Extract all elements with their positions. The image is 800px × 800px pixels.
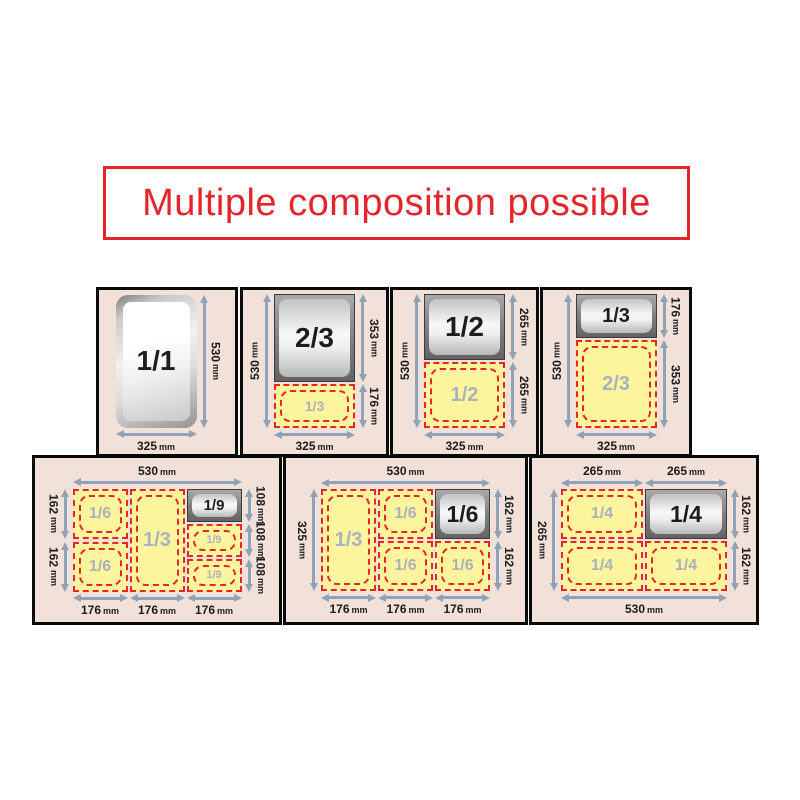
pan-surface: 1/4: [650, 494, 722, 534]
panel-1-3-plus-2-3: 1/32/3325mm530mm176mm353mm: [540, 287, 692, 457]
pan-grid-column: 1/61/6: [435, 489, 490, 591]
v-dimension-arrow-icon: [309, 489, 318, 591]
dim-label: 176mm: [329, 603, 367, 615]
panel-1-6-1-3-1-9: 1/61/61/31/91/91/9530mm176mm176mm176mm16…: [32, 455, 282, 625]
dim-label: 108mm: [255, 556, 267, 594]
v-dimension-arrow-icon: [245, 524, 254, 557]
right-dimensions: 176mm353mm: [660, 294, 682, 428]
bottom-dimensions: 325mm: [274, 430, 355, 452]
dim-right: 162mm: [493, 489, 515, 539]
dim-label: 162mm: [503, 547, 515, 585]
title-text: Multiple composition possible: [142, 182, 651, 225]
dim-bottom: 176mm: [130, 594, 185, 616]
dim-label: 265mm: [518, 376, 530, 414]
pan-grid-column: 1/61/6: [73, 489, 128, 592]
dim-top: 530mm: [321, 465, 490, 487]
dim-right: 353mm: [660, 340, 682, 428]
right-dimensions: 530mm: [200, 295, 222, 428]
pan-grid: 1/1: [116, 295, 197, 428]
pan-grid-column: 1/61/6: [378, 489, 433, 591]
h-dimension-arrow-icon: [116, 430, 197, 439]
pan-grid-column: 1/3: [321, 489, 376, 591]
dim-label: 530mm: [138, 465, 176, 477]
top-dimensions: 265mm265mm: [561, 465, 727, 487]
dashed-cell-1-3: 1/3: [321, 489, 376, 591]
dim-bottom: 176mm: [73, 594, 128, 616]
dim-label: 176mm: [138, 604, 176, 616]
dim-label: 530mm: [386, 465, 424, 477]
bottom-dimensions: 325mm: [116, 430, 197, 452]
panel-2-3-plus-1-3: 2/31/3325mm530mm353mm176mm: [240, 287, 389, 457]
dim-bottom: 176mm: [187, 594, 242, 616]
pan-grid-column: 1/3: [130, 489, 185, 592]
dim-label: 325mm: [597, 440, 635, 452]
dashed-cell-1-6: 1/6: [378, 541, 433, 591]
dim-label: 162mm: [48, 547, 60, 585]
h-dimension-arrow-icon: [321, 478, 490, 487]
title-box: Multiple composition possible: [103, 166, 690, 240]
bottom-dimensions: 530mm: [561, 593, 727, 615]
dim-label: 325mm: [295, 440, 333, 452]
pan-grid-column: 2/31/3: [274, 294, 355, 428]
dashed-cell-1-6: 1/6: [378, 489, 433, 539]
top-dimensions: 530mm: [73, 465, 242, 487]
dim-top: 265mm: [645, 465, 727, 487]
dim-label: 176mm: [386, 603, 424, 615]
dim-label: 108mm: [255, 521, 267, 559]
pan-label: 1/3: [602, 306, 630, 326]
top-dimensions: 530mm: [321, 465, 490, 487]
composition-diagram: Multiple composition possible 1/1325mm53…: [0, 0, 800, 800]
panel-1-2-plus-1-2: 1/21/2325mm530mm265mm265mm: [390, 287, 539, 457]
h-dimension-arrow-icon: [435, 593, 490, 602]
pan-surface: 1/1: [123, 302, 190, 421]
v-dimension-arrow-icon: [245, 559, 254, 592]
dim-label: 176mm: [368, 387, 380, 425]
panel-1-1: 1/1325mm530mm: [96, 287, 238, 457]
dim-left: 530mm: [249, 294, 271, 428]
dashed-cell-1-4: 1/4: [645, 541, 727, 591]
dim-label: 162mm: [48, 494, 60, 532]
dim-label: 353mm: [670, 365, 682, 403]
dim-label: 325mm: [296, 521, 308, 559]
pan-1-9: 1/9: [187, 489, 242, 522]
dim-bottom: 325mm: [274, 430, 355, 452]
pan-grid-column: 1/41/4: [561, 489, 643, 591]
dashed-cell-1-4: 1/4: [561, 489, 643, 539]
pan-label: 2/3: [295, 324, 334, 352]
dim-right: 176mm: [358, 384, 380, 428]
dim-label: 265mm: [518, 308, 530, 346]
dim-left: 325mm: [296, 489, 318, 591]
dim-right: 265mm: [508, 362, 530, 428]
dashed-cell-1-3: 1/3: [130, 489, 185, 592]
dim-left: 530mm: [551, 294, 573, 428]
dim-label: 530mm: [210, 342, 222, 380]
pan-1-2: 1/2: [424, 294, 505, 360]
pan-label: 1/9: [204, 498, 225, 513]
bottom-dimensions: 325mm: [424, 430, 505, 452]
dashed-cell-label: 1/2: [451, 385, 479, 405]
pan-label: 1/4: [670, 503, 702, 526]
dashed-cell-label: 1/9: [206, 570, 221, 581]
dim-bottom: 176mm: [435, 593, 490, 615]
dashed-cell-label: 1/9: [206, 535, 221, 546]
dim-label: 353mm: [368, 319, 380, 357]
v-dimension-arrow-icon: [493, 541, 502, 591]
dim-label: 162mm: [740, 495, 752, 533]
pan-grid: 1/21/2: [424, 294, 505, 428]
pan-grid: 2/31/3: [274, 294, 355, 428]
v-dimension-arrow-icon: [660, 340, 669, 428]
h-dimension-arrow-icon: [274, 430, 355, 439]
dim-label: 530mm: [625, 603, 663, 615]
dim-label: 530mm: [249, 342, 261, 380]
v-dimension-arrow-icon: [508, 362, 517, 428]
pan-grid: 1/32/3: [576, 294, 657, 428]
dashed-cell-label: 2/3: [602, 374, 630, 394]
v-dimension-arrow-icon: [358, 294, 367, 382]
dim-top: 530mm: [73, 465, 242, 487]
dim-label: 176mm: [81, 604, 119, 616]
dim-right: 108mm: [245, 559, 267, 592]
dim-label: 176mm: [195, 604, 233, 616]
dim-label: 176mm: [443, 603, 481, 615]
pan-grid-column: 1/21/2: [424, 294, 505, 428]
pan-1-1: 1/1: [116, 295, 197, 428]
dim-bottom: 325mm: [576, 430, 657, 452]
dashed-cell-1-6: 1/6: [73, 542, 128, 592]
dim-label: 325mm: [137, 440, 175, 452]
dim-left: 162mm: [48, 489, 70, 539]
dim-left: 162mm: [48, 542, 70, 592]
panel-quarters-1-4: 1/41/41/41/4265mm265mm530mm265mm162mm162…: [529, 455, 759, 625]
dashed-cell-label: 1/3: [305, 399, 324, 413]
dim-label: 530mm: [551, 342, 563, 380]
v-dimension-arrow-icon: [660, 294, 669, 338]
left-dimensions: 530mm: [399, 294, 421, 428]
dim-right: 162mm: [730, 541, 752, 591]
dashed-cell-label: 1/3: [335, 530, 363, 550]
dashed-cell-label: 1/4: [675, 558, 697, 574]
v-dimension-arrow-icon: [262, 294, 271, 428]
h-dimension-arrow-icon: [321, 593, 376, 602]
left-dimensions: 530mm: [249, 294, 271, 428]
dashed-cell-label: 1/3: [143, 530, 171, 550]
dashed-cell-label: 1/6: [451, 558, 473, 574]
pan-grid-column: 1/41/4: [645, 489, 727, 591]
panel-1-3-1-6-1-6: 1/31/61/61/61/6530mm176mm176mm176mm325mm…: [283, 455, 528, 625]
dim-label: 325mm: [445, 440, 483, 452]
left-dimensions: 265mm: [536, 489, 558, 591]
h-dimension-arrow-icon: [73, 478, 242, 487]
v-dimension-arrow-icon: [730, 489, 739, 539]
pan-label: 1/1: [137, 347, 176, 375]
pan-grid-column: 1/91/91/9: [187, 489, 242, 592]
dashed-cell-1-4: 1/4: [561, 541, 643, 591]
dashed-cell-label: 1/6: [89, 559, 111, 575]
h-dimension-arrow-icon: [645, 478, 727, 487]
pan-grid: 1/41/41/41/4: [561, 489, 727, 591]
dim-left: 530mm: [399, 294, 421, 428]
dim-right: 108mm: [245, 489, 267, 522]
dim-bottom: 530mm: [561, 593, 727, 615]
dim-top: 265mm: [561, 465, 643, 487]
dim-right: 353mm: [358, 294, 380, 382]
pan-grid-column: 1/32/3: [576, 294, 657, 428]
right-dimensions: 162mm162mm: [730, 489, 752, 591]
v-dimension-arrow-icon: [358, 384, 367, 428]
v-dimension-arrow-icon: [549, 489, 558, 591]
dashed-cell-2-3: 2/3: [576, 340, 657, 428]
h-dimension-arrow-icon: [561, 478, 643, 487]
bottom-dimensions: 176mm176mm176mm: [321, 593, 490, 615]
left-dimensions: 530mm: [551, 294, 573, 428]
v-dimension-arrow-icon: [564, 294, 573, 428]
dashed-cell-1-9: 1/9: [187, 559, 242, 592]
pan-2-3: 2/3: [274, 294, 355, 382]
dashed-cell-1-6: 1/6: [435, 541, 490, 591]
h-dimension-arrow-icon: [73, 594, 128, 603]
v-dimension-arrow-icon: [61, 489, 70, 539]
dim-bottom: 176mm: [378, 593, 433, 615]
h-dimension-arrow-icon: [378, 593, 433, 602]
dim-right: 530mm: [200, 295, 222, 428]
dim-right: 162mm: [730, 489, 752, 539]
dashed-cell-label: 1/6: [394, 558, 416, 574]
dim-bottom: 325mm: [424, 430, 505, 452]
pan-1-3: 1/3: [576, 294, 657, 338]
dim-bottom: 325mm: [116, 430, 197, 452]
pan-1-6: 1/6: [435, 489, 490, 539]
right-dimensions: 353mm176mm: [358, 294, 380, 428]
v-dimension-arrow-icon: [412, 294, 421, 428]
dashed-cell-label: 1/6: [89, 506, 111, 522]
dim-right: 162mm: [493, 541, 515, 591]
dim-label: 176mm: [670, 297, 682, 335]
pan-grid-column: 1/1: [116, 295, 197, 428]
dashed-cell-label: 1/4: [591, 506, 613, 522]
pan-grid: 1/61/61/31/91/91/9: [73, 489, 242, 592]
left-dimensions: 162mm162mm: [48, 489, 70, 592]
v-dimension-arrow-icon: [200, 295, 209, 428]
dashed-cell-1-6: 1/6: [73, 489, 128, 539]
h-dimension-arrow-icon: [187, 594, 242, 603]
dim-label: 162mm: [503, 495, 515, 533]
h-dimension-arrow-icon: [576, 430, 657, 439]
pan-surface: 1/6: [440, 494, 485, 534]
dim-bottom: 176mm: [321, 593, 376, 615]
left-dimensions: 325mm: [296, 489, 318, 591]
dim-label: 265mm: [536, 521, 548, 559]
pan-label: 1/6: [447, 503, 479, 526]
pan-1-4: 1/4: [645, 489, 727, 539]
v-dimension-arrow-icon: [508, 294, 517, 360]
pan-surface: 1/3: [581, 299, 652, 333]
dim-right: 265mm: [508, 294, 530, 360]
pan-surface: 2/3: [279, 299, 350, 377]
v-dimension-arrow-icon: [493, 489, 502, 539]
h-dimension-arrow-icon: [424, 430, 505, 439]
dashed-cell-1-2: 1/2: [424, 362, 505, 428]
dim-label: 265mm: [667, 465, 705, 477]
bottom-dimensions: 176mm176mm176mm: [73, 594, 242, 616]
h-dimension-arrow-icon: [130, 594, 185, 603]
dim-label: 108mm: [255, 486, 267, 524]
dim-left: 265mm: [536, 489, 558, 591]
v-dimension-arrow-icon: [730, 541, 739, 591]
right-dimensions: 162mm162mm: [493, 489, 515, 591]
pan-surface: 1/9: [192, 494, 237, 517]
right-dimensions: 108mm108mm108mm: [245, 489, 267, 592]
dashed-cell-label: 1/6: [394, 506, 416, 522]
bottom-dimensions: 325mm: [576, 430, 657, 452]
pan-label: 1/2: [445, 313, 484, 341]
v-dimension-arrow-icon: [61, 542, 70, 592]
v-dimension-arrow-icon: [245, 489, 254, 522]
dim-right: 108mm: [245, 524, 267, 557]
dashed-cell-label: 1/4: [591, 558, 613, 574]
dashed-cell-1-9: 1/9: [187, 524, 242, 557]
pan-grid: 1/31/61/61/61/6: [321, 489, 490, 591]
dashed-cell-1-3: 1/3: [274, 384, 355, 428]
dim-label: 162mm: [740, 547, 752, 585]
h-dimension-arrow-icon: [561, 593, 727, 602]
pan-surface: 1/2: [429, 299, 500, 355]
dim-right: 176mm: [660, 294, 682, 338]
dim-label: 530mm: [399, 342, 411, 380]
dim-label: 265mm: [583, 465, 621, 477]
right-dimensions: 265mm265mm: [508, 294, 530, 428]
